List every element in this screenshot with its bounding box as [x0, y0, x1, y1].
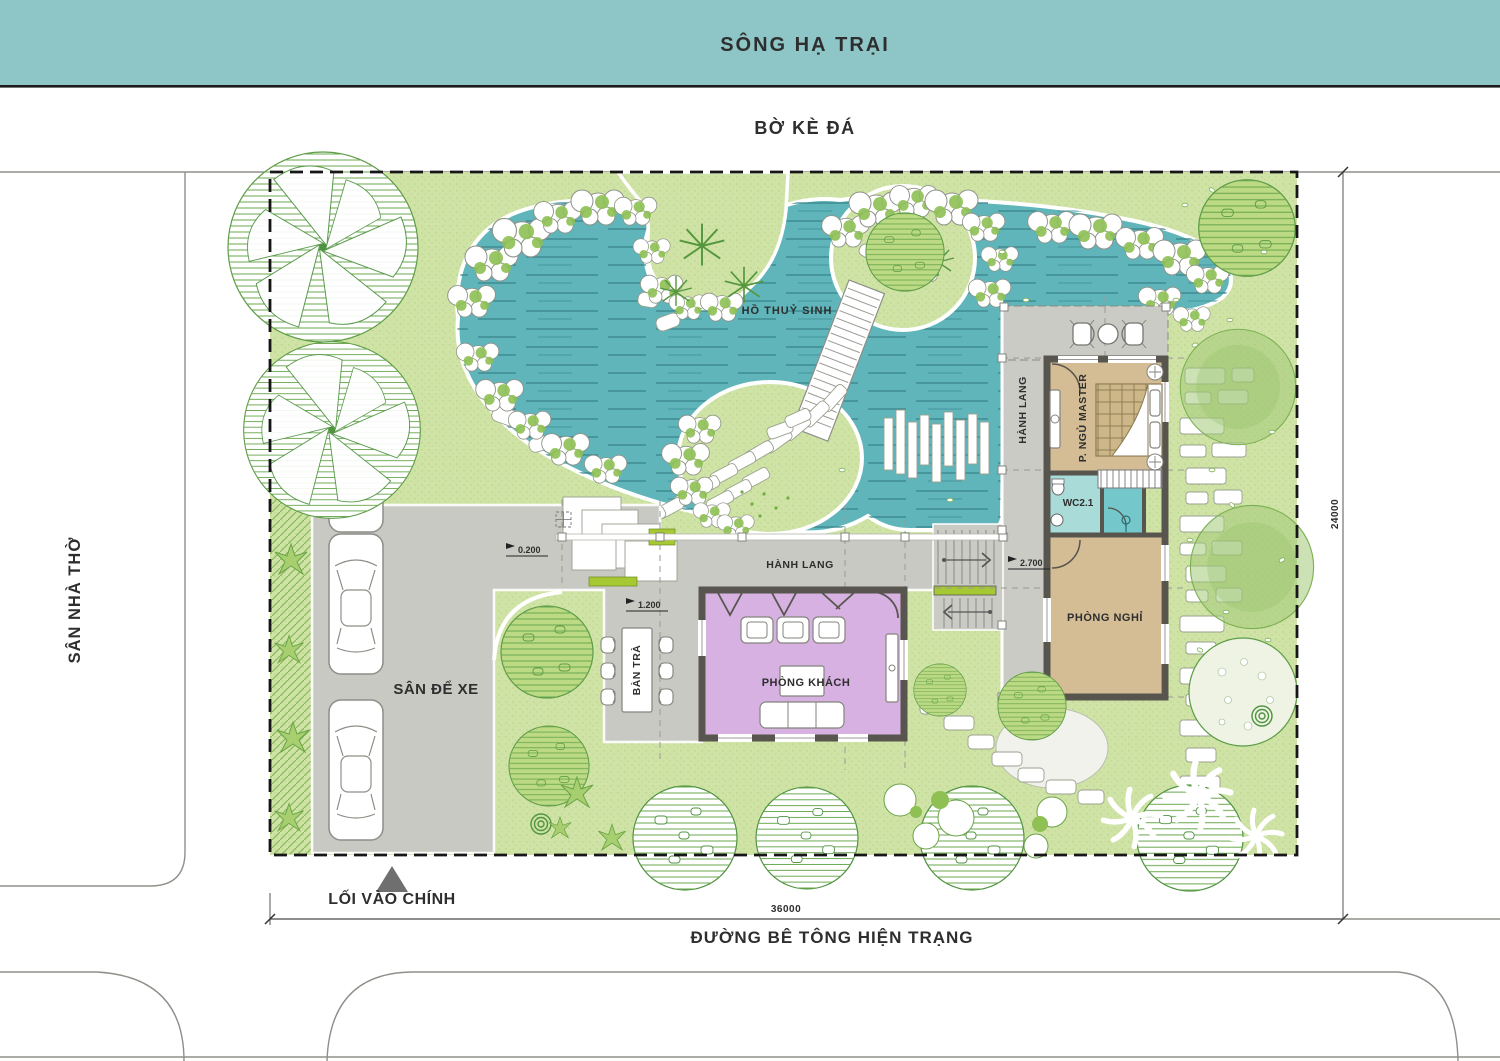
wc-label: WC2.1	[1063, 498, 1094, 509]
corridor-side-label: HÀNH LANG	[1016, 376, 1029, 444]
entrance-arrow	[376, 866, 408, 892]
living-room-label: PHÒNG KHÁCH	[762, 676, 851, 689]
living-room	[698, 590, 908, 742]
tea-table-label: BÀN TRÀ	[630, 645, 643, 696]
church-yard-label: SÂN NHÀ THỜ	[65, 537, 84, 664]
bedroom-wing	[1043, 356, 1169, 697]
terrace-beam	[556, 534, 1008, 540]
parking-label: SÂN ĐỂ XE	[393, 680, 478, 698]
level-entry: 0.200	[518, 545, 541, 555]
corridor-main-label: HÀNH LANG	[766, 558, 834, 571]
level-upper: 2.700	[1020, 558, 1043, 568]
entrance-label: LỐI VÀO CHÍNH	[328, 888, 455, 908]
road-label: ĐƯỜNG BÊ TÔNG HIỆN TRẠNG	[690, 928, 973, 947]
dim-site-width: 36000	[771, 904, 801, 915]
master-bedroom-label: P. NGỦ MASTER	[1076, 374, 1089, 463]
river-label: SÔNG HẠ TRẠI	[720, 32, 890, 56]
church-yard-boundary	[0, 172, 185, 886]
rest-room-label: PHÒNG NGHỈ	[1067, 611, 1143, 624]
terrace-chairs	[1070, 320, 1146, 348]
dim-site-depth: 24000	[1330, 499, 1341, 529]
site-plan-drawing: 36000 24000 0.200 1.200 2.700 SÔNG HẠ TR…	[0, 0, 1500, 1061]
level-living: 1.200	[638, 600, 661, 610]
side-corridor-paving	[1002, 306, 1048, 702]
pond-label: HỒ THUỶ SINH	[742, 304, 833, 317]
embankment-label: BỜ KÈ ĐÁ	[754, 117, 855, 138]
plan-canvas: 36000 24000 0.200 1.200 2.700 SÔNG HẠ TR…	[0, 0, 1500, 1061]
